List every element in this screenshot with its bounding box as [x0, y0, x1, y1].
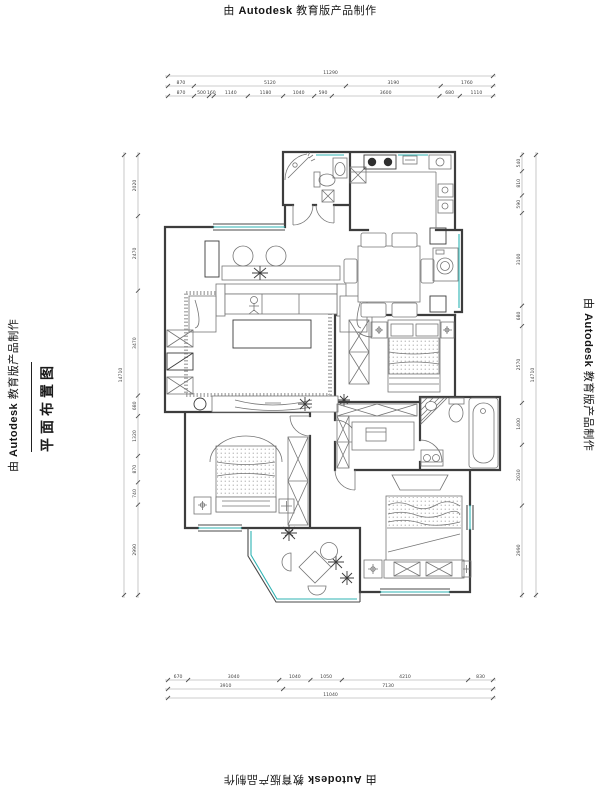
svg-text:680: 680	[516, 311, 522, 320]
svg-text:870: 870	[177, 80, 186, 86]
bedroom2-furniture	[194, 436, 308, 525]
bathroom1-fixtures	[285, 152, 366, 202]
svg-text:590: 590	[319, 90, 328, 96]
floor-plan-drawing: 1129087051203190176087050016011401180104…	[0, 0, 600, 790]
bathroom-door	[316, 205, 334, 223]
kitchen-fixtures	[350, 155, 453, 228]
svg-text:830: 830	[476, 674, 485, 680]
master-bedroom-furniture	[364, 475, 471, 578]
svg-text:590: 590	[516, 200, 522, 209]
svg-text:1760: 1760	[461, 80, 473, 86]
svg-text:3910: 3910	[220, 683, 232, 689]
svg-text:1140: 1140	[225, 90, 237, 96]
living-room-furniture	[167, 246, 367, 412]
svg-text:3600: 3600	[380, 90, 392, 96]
svg-text:2990: 2990	[516, 544, 522, 556]
svg-text:11040: 11040	[323, 692, 338, 698]
svg-text:5120: 5120	[264, 80, 276, 86]
svg-text:2020: 2020	[132, 180, 138, 192]
svg-text:1400: 1400	[516, 418, 522, 430]
svg-text:870: 870	[177, 90, 186, 96]
cad-floor-plan-sheet: { "watermark": { "prefix": "由", "brand":…	[0, 0, 600, 790]
svg-text:1040: 1040	[289, 674, 301, 680]
bathroom2-fixtures	[421, 398, 498, 468]
svg-text:3040: 3040	[228, 674, 240, 680]
svg-text:2990: 2990	[132, 544, 138, 556]
svg-text:2470: 2470	[132, 247, 138, 259]
svg-text:870: 870	[132, 465, 138, 474]
svg-text:500: 500	[197, 90, 206, 96]
svg-text:3100: 3100	[516, 253, 522, 265]
svg-text:3190: 3190	[387, 80, 399, 86]
svg-text:1320: 1320	[132, 430, 138, 442]
svg-text:4210: 4210	[399, 674, 411, 680]
svg-text:1040: 1040	[293, 90, 305, 96]
svg-text:1110: 1110	[471, 90, 483, 96]
svg-text:2570: 2570	[516, 359, 522, 371]
bedroom2-door	[290, 416, 310, 436]
svg-text:740: 740	[132, 489, 138, 498]
svg-text:11290: 11290	[323, 70, 338, 76]
study-furniture	[337, 404, 417, 468]
svg-text:160: 160	[207, 90, 216, 96]
entry-door	[293, 205, 313, 225]
svg-text:7130: 7130	[382, 683, 394, 689]
svg-text:14710: 14710	[118, 368, 124, 383]
service-balcony	[433, 248, 458, 281]
balcony-furniture	[281, 525, 354, 595]
walls	[165, 152, 500, 602]
svg-text:810: 810	[516, 179, 522, 188]
svg-text:2030: 2030	[516, 469, 522, 481]
svg-text:540: 540	[516, 159, 522, 168]
svg-text:1180: 1180	[260, 90, 272, 96]
svg-text:680: 680	[132, 401, 138, 410]
master-door	[335, 470, 355, 490]
svg-text:680: 680	[445, 90, 454, 96]
svg-text:14710: 14710	[530, 368, 536, 383]
svg-text:3470: 3470	[132, 337, 138, 349]
svg-text:670: 670	[174, 674, 183, 680]
svg-text:1050: 1050	[320, 674, 332, 680]
